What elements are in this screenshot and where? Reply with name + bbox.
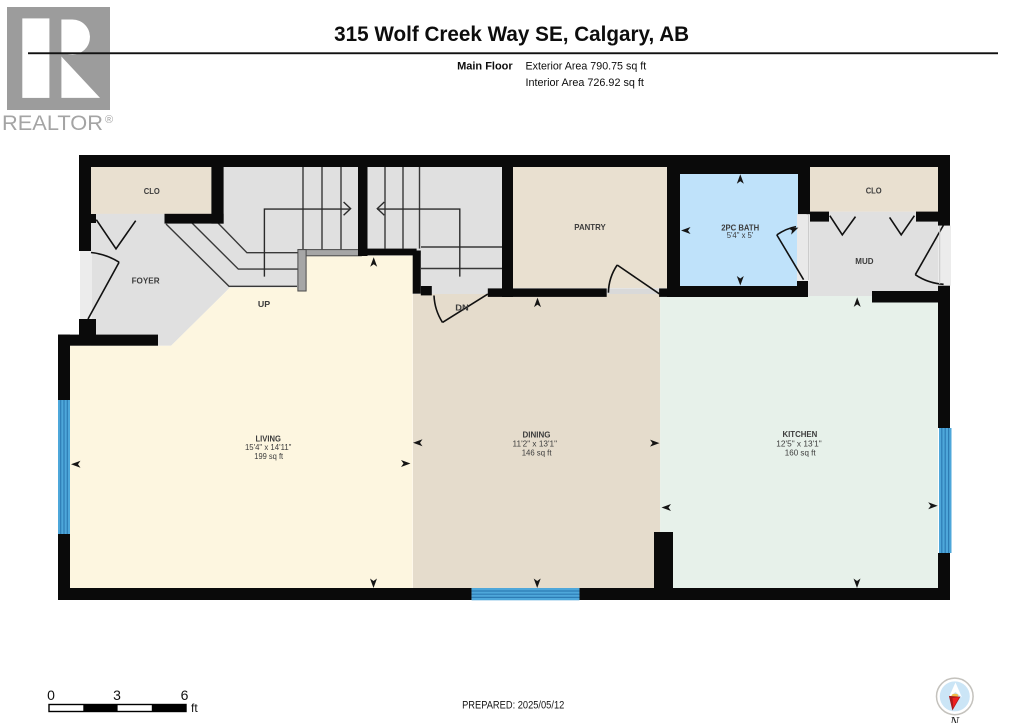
svg-text:KITCHEN: KITCHEN xyxy=(782,429,817,439)
svg-text:3: 3 xyxy=(113,687,121,703)
svg-text:11'2" x 13'1": 11'2" x 13'1" xyxy=(513,440,558,449)
svg-text:146 sq ft: 146 sq ft xyxy=(522,449,553,458)
svg-text:DINING: DINING xyxy=(522,429,550,439)
svg-text:PANTRY: PANTRY xyxy=(574,222,606,232)
svg-text:5'4" x 5': 5'4" x 5' xyxy=(727,231,754,240)
svg-text:Interior Area 726.92 sq ft: Interior Area 726.92 sq ft xyxy=(526,77,644,89)
svg-text:15'4" x 14'11": 15'4" x 14'11" xyxy=(245,443,292,452)
svg-text:Main Floor: Main Floor xyxy=(457,61,513,73)
svg-text:PREPARED: 2025/05/12: PREPARED: 2025/05/12 xyxy=(462,700,564,712)
svg-text:LIVING: LIVING xyxy=(256,433,282,443)
svg-text:12'5" x 13'1": 12'5" x 13'1" xyxy=(776,440,822,449)
svg-text:ft: ft xyxy=(191,701,198,715)
svg-text:FOYER: FOYER xyxy=(132,276,160,286)
svg-text:315 Wolf Creek Way SE, Calgary: 315 Wolf Creek Way SE, Calgary, AB xyxy=(334,22,689,46)
svg-text:UP: UP xyxy=(258,299,271,309)
svg-text:6: 6 xyxy=(181,687,189,703)
svg-text:CLO: CLO xyxy=(866,185,882,195)
svg-text:199 sq ft: 199 sq ft xyxy=(254,452,284,461)
svg-text:Exterior Area 790.75 sq ft: Exterior Area 790.75 sq ft xyxy=(526,61,647,73)
svg-text:®: ® xyxy=(105,114,113,126)
svg-text:MUD: MUD xyxy=(855,256,873,266)
svg-text:DN: DN xyxy=(455,303,469,313)
svg-text:CLO: CLO xyxy=(144,186,160,196)
svg-text:N: N xyxy=(949,714,960,723)
svg-text:0: 0 xyxy=(47,687,55,703)
svg-text:160 sq ft: 160 sq ft xyxy=(785,449,817,458)
svg-text:REALTOR: REALTOR xyxy=(2,111,103,135)
